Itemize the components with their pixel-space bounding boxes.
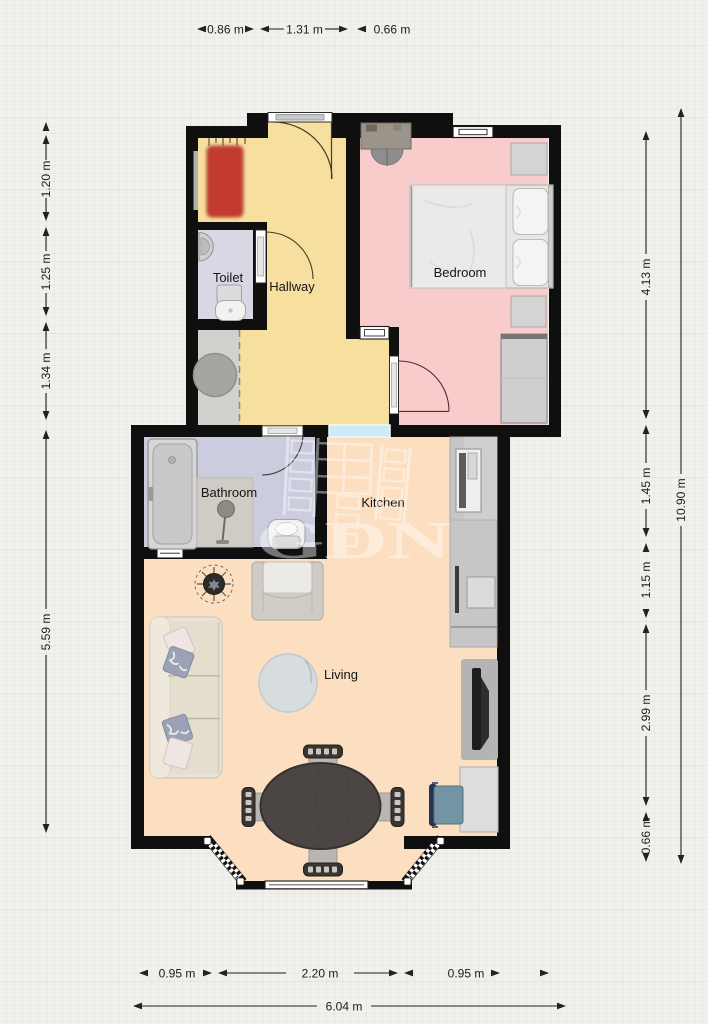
svg-text:6.04 m: 6.04 m (326, 1000, 363, 1014)
svg-text:Living: Living (324, 667, 358, 682)
svg-text:1.45 m: 1.45 m (639, 468, 653, 505)
svg-text:1.20 m: 1.20 m (39, 161, 53, 198)
svg-text:1.15 m: 1.15 m (639, 562, 653, 599)
svg-text:1.31 m: 1.31 m (286, 23, 323, 37)
svg-text:0.95 m: 0.95 m (448, 967, 485, 981)
svg-text:2.20 m: 2.20 m (302, 967, 339, 981)
svg-text:Bathroom: Bathroom (201, 485, 257, 500)
svg-text:GDN: GDN (256, 512, 451, 570)
svg-text:0.66 m: 0.66 m (639, 818, 653, 855)
svg-text:0.66 m: 0.66 m (374, 23, 411, 37)
svg-text:5.59 m: 5.59 m (39, 614, 53, 651)
svg-text:1.25 m: 1.25 m (39, 254, 53, 291)
svg-text:4.13 m: 4.13 m (639, 259, 653, 296)
svg-text:1.34 m: 1.34 m (39, 353, 53, 390)
svg-text:2.99 m: 2.99 m (639, 695, 653, 732)
svg-text:Bedroom: Bedroom (434, 265, 487, 280)
svg-text:Hallway: Hallway (269, 279, 315, 294)
svg-text:0.95 m: 0.95 m (159, 967, 196, 981)
svg-text:0.86 m: 0.86 m (207, 23, 244, 37)
svg-text:Toilet: Toilet (213, 270, 244, 285)
svg-text:10.90 m: 10.90 m (674, 478, 688, 521)
